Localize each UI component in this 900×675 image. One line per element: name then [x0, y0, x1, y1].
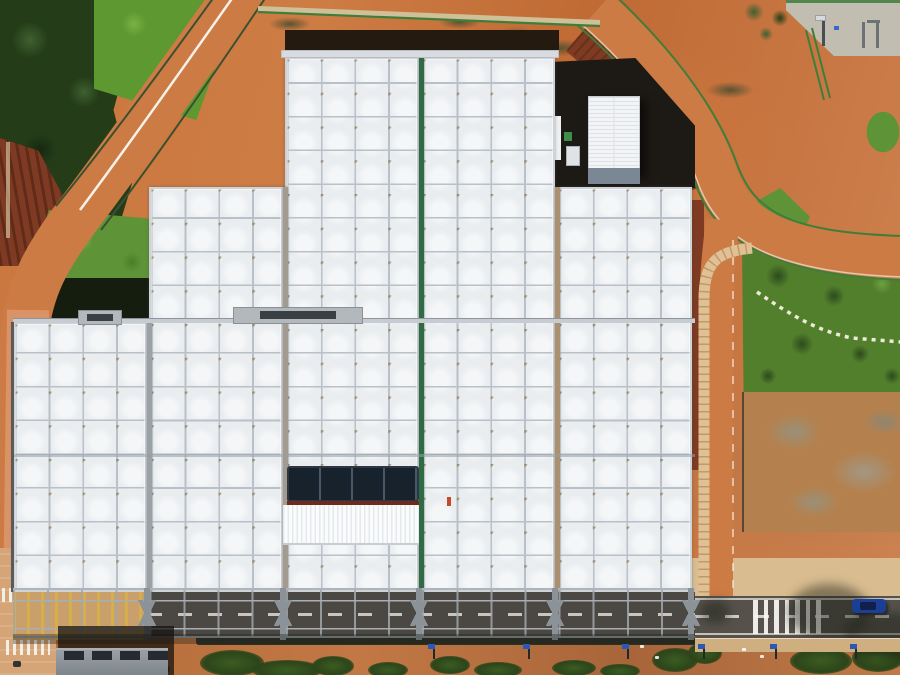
street-lamp-solar-panel	[622, 644, 629, 649]
street-lamp-solar-panel	[428, 644, 435, 649]
roof-section-center-right	[421, 57, 555, 592]
east-service-road	[716, 220, 723, 604]
zebra-stripe	[764, 600, 769, 634]
rooftop-ahu-platform	[78, 310, 122, 325]
stepping-stone-path	[757, 292, 900, 342]
manhole-cover	[13, 661, 21, 667]
bush	[368, 662, 408, 675]
roof-vent	[120, 651, 140, 660]
rooftop-ahu-platform	[233, 307, 363, 324]
rooftop-equipment	[564, 132, 572, 141]
solar-panel-array	[287, 466, 419, 502]
perimeter-path	[258, 9, 600, 23]
ahu-vent	[87, 314, 112, 321]
aerial-photo	[0, 0, 900, 675]
ac-unit	[566, 146, 580, 166]
roof-top-frame	[281, 50, 559, 58]
debris-speck	[742, 648, 746, 651]
ahu-vent	[260, 311, 337, 319]
roof-divider-strip	[555, 187, 560, 592]
debris-speck	[655, 656, 659, 659]
roof-vent	[92, 651, 112, 660]
bush	[552, 660, 596, 675]
roof-seam	[13, 454, 695, 457]
roof-divider-strip	[147, 322, 152, 592]
stair-railing	[806, 28, 830, 100]
roof-section-left	[13, 322, 147, 592]
car	[852, 599, 886, 613]
roof-edge	[11, 322, 14, 592]
roof-section-right	[557, 187, 692, 592]
debris-speck	[760, 655, 764, 658]
debris-speck	[640, 645, 644, 648]
truss-x-brace	[393, 600, 445, 626]
red-roof-trim	[447, 497, 451, 506]
roof-divider-strip	[419, 57, 424, 592]
truss-x-brace	[121, 600, 173, 626]
sidewalk	[695, 638, 900, 652]
car-windshield	[860, 602, 876, 610]
bush	[600, 664, 640, 675]
street-lamp-solar-panel	[770, 644, 777, 649]
bush	[312, 656, 354, 675]
roof-vent	[148, 651, 168, 660]
zebra-stripe	[774, 600, 779, 634]
white-metal-roof-patch	[283, 505, 419, 545]
truss-x-brace	[257, 600, 309, 626]
truss-x-brace	[529, 600, 581, 626]
bush	[430, 656, 470, 674]
zebra-stripe	[753, 600, 758, 634]
street-lamp-solar-panel	[523, 644, 530, 649]
truss-x-brace	[665, 600, 717, 626]
service-building-roof	[588, 96, 640, 174]
roof-section-mid-left	[149, 187, 283, 592]
street-lamp-solar-panel	[850, 644, 857, 649]
service-building-base	[588, 168, 640, 184]
roof-vent	[64, 651, 84, 660]
street-lamp-solar-panel	[698, 644, 705, 649]
bush	[474, 662, 522, 675]
